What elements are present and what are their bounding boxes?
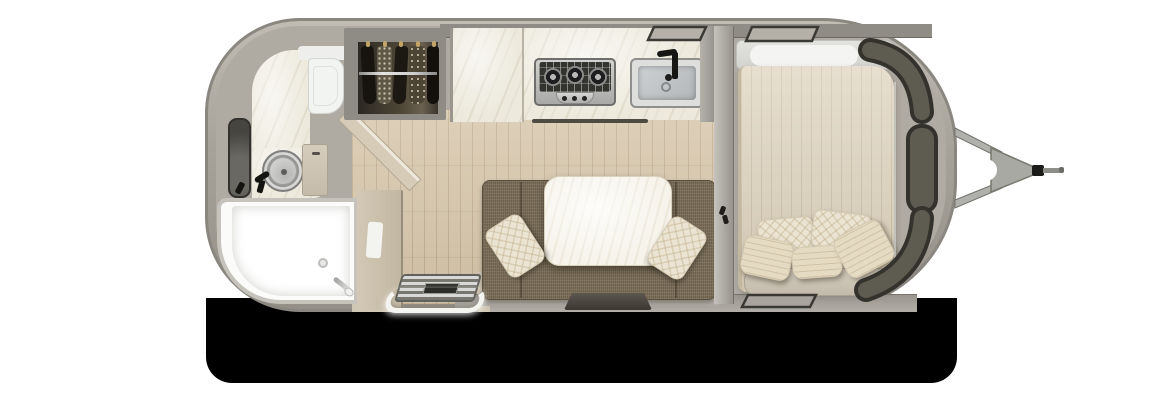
garment	[409, 46, 425, 104]
round-sink-drain	[281, 169, 287, 175]
floorplan-canvas	[0, 0, 1170, 408]
bathroom-door-panel	[366, 222, 383, 259]
hitch-tip	[1059, 167, 1064, 173]
hanger-hook	[383, 41, 387, 47]
toilet-lid	[313, 66, 338, 106]
hanging-rod	[359, 72, 437, 75]
shower-drain	[318, 258, 328, 268]
cooktop-knob	[582, 96, 587, 101]
burner-icon	[566, 66, 584, 84]
garment	[427, 46, 439, 104]
cooktop-knob	[562, 96, 567, 101]
roof-window	[648, 27, 706, 40]
hanger-hook	[366, 41, 370, 47]
shower-tray	[232, 206, 350, 296]
windows-and-hitch-overlay	[600, 0, 1170, 340]
entry-grab-rail	[382, 288, 487, 313]
hanger-hook	[416, 41, 420, 47]
bottom-roof-window	[742, 295, 816, 307]
vanity-vent	[312, 152, 320, 155]
roof-window	[746, 27, 818, 41]
garment	[377, 46, 392, 104]
hanger-hook	[432, 41, 436, 47]
burner-icon	[544, 68, 562, 86]
hitch-coupler	[1032, 165, 1044, 176]
front-side-window	[908, 126, 936, 212]
hitch-notch	[975, 159, 997, 181]
hanger-hook	[399, 41, 403, 47]
pantry-cabinet	[450, 28, 524, 122]
hitch-stub	[1043, 168, 1060, 173]
cooktop-knob	[572, 96, 577, 101]
